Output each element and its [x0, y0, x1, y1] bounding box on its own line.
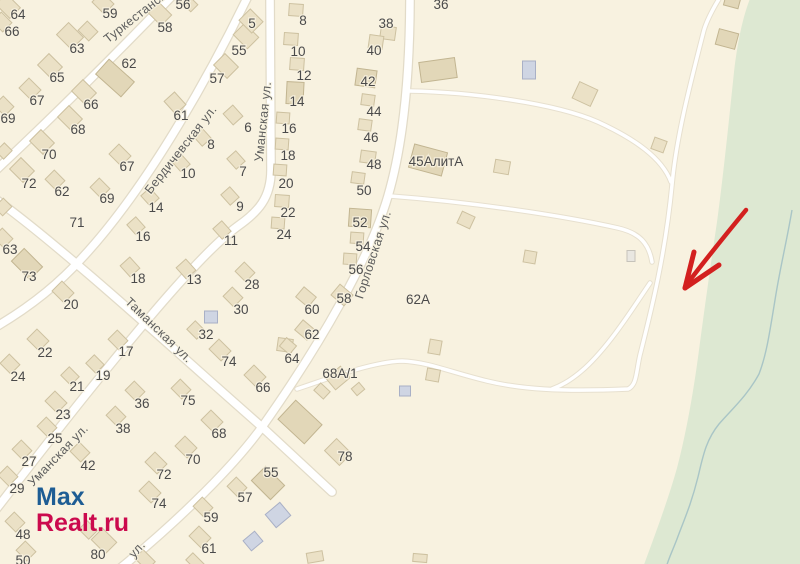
building — [265, 502, 290, 527]
building — [306, 551, 323, 564]
house-number-label: 73 — [21, 269, 36, 284]
house-number-label: 64 — [10, 7, 26, 22]
house-number-label: 16 — [135, 229, 150, 244]
house-number-label: 62 — [121, 56, 136, 71]
house-number-label: 72 — [156, 467, 171, 482]
house-number-label: 25 — [47, 431, 62, 446]
house-number-label: 74 — [151, 496, 167, 511]
house-number-label: 9 — [236, 199, 244, 214]
building — [572, 82, 598, 107]
road — [0, 0, 271, 512]
building — [426, 368, 441, 382]
house-number-label: 62 — [304, 327, 319, 342]
house-number-label: 62А — [406, 292, 430, 307]
building — [493, 159, 510, 174]
house-number-label: 13 — [186, 272, 201, 287]
map-canvas[interactable]: ТуркестанскаяБердичевская ул.Уманская ул… — [0, 0, 800, 564]
house-number-label: 8 — [207, 137, 215, 152]
house-number-label: 57 — [209, 71, 224, 86]
house-number-label: 54 — [355, 239, 371, 254]
watermark-logo: Max Realt.ru — [36, 484, 129, 536]
building — [523, 61, 536, 79]
building — [651, 137, 667, 153]
house-number-label: 48 — [366, 157, 381, 172]
house-number-label: 40 — [366, 43, 381, 58]
house-number-label: 6 — [244, 120, 252, 135]
house-number-label: 58 — [157, 20, 172, 35]
house-number-label: 63 — [2, 242, 17, 257]
house-number-label: 71 — [69, 215, 84, 230]
house-number-label: 10 — [180, 166, 195, 181]
house-number-label: 59 — [203, 510, 218, 525]
house-number-label: 16 — [281, 121, 296, 136]
building — [457, 211, 475, 229]
house-number-label: 46 — [363, 130, 378, 145]
house-number-label: 20 — [278, 176, 293, 191]
house-number-label: 5 — [248, 16, 256, 31]
building — [428, 339, 442, 355]
house-number-label: 65 — [49, 70, 64, 85]
house-number-label: 52 — [352, 215, 367, 230]
house-number-label: 56 — [175, 0, 190, 12]
house-number-label: 7 — [239, 164, 247, 179]
house-number-label: 50 — [15, 553, 30, 564]
house-number-label: 28 — [244, 277, 259, 292]
house-number-label: 64 — [284, 351, 300, 366]
building — [223, 105, 243, 125]
house-number-label: 32 — [198, 327, 213, 342]
house-number-label: 70 — [185, 452, 200, 467]
house-number-label: 67 — [119, 159, 134, 174]
house-number-label: 69 — [99, 191, 114, 206]
house-number-label: 69 — [0, 111, 15, 126]
building — [627, 251, 635, 262]
house-number-label: 44 — [366, 104, 382, 119]
house-number-label: 75 — [180, 393, 195, 408]
house-number-label: 24 — [276, 227, 292, 242]
building — [413, 553, 428, 562]
house-number-label: 42 — [80, 458, 95, 473]
house-number-label: 62 — [54, 184, 69, 199]
house-number-label: 68 — [211, 426, 226, 441]
house-number-label: 21 — [69, 379, 84, 394]
house-number-label: 68 — [70, 122, 85, 137]
house-number-label: 22 — [280, 205, 295, 220]
house-number-label: 20 — [63, 297, 78, 312]
house-number-label: 58 — [336, 291, 351, 306]
house-number-label: 12 — [296, 68, 311, 83]
building — [715, 29, 738, 50]
building — [273, 164, 287, 176]
road — [0, 0, 271, 512]
watermark-line1: Max — [36, 484, 129, 510]
house-number-label: 59 — [102, 6, 117, 21]
house-number-label: 68А/1 — [322, 366, 357, 381]
house-number-label: 66 — [4, 24, 19, 39]
house-number-label: 14 — [148, 200, 164, 215]
house-number-label: 48 — [15, 527, 30, 542]
house-number-label: 57 — [237, 490, 252, 505]
building — [205, 311, 218, 323]
house-number-label: 50 — [356, 183, 371, 198]
house-number-label: 45АлитА — [409, 154, 464, 169]
house-number-label: 70 — [41, 147, 56, 162]
building — [419, 58, 457, 83]
house-number-label: 66 — [83, 97, 98, 112]
house-number-label: 23 — [55, 407, 70, 422]
building — [243, 531, 263, 551]
house-number-label: 18 — [130, 271, 145, 286]
building — [723, 0, 740, 9]
house-number-label: 72 — [21, 176, 36, 191]
house-number-label: 80 — [90, 547, 105, 562]
house-number-label: 29 — [9, 481, 24, 496]
house-number-label: 55 — [231, 43, 246, 58]
greenery-area — [642, 0, 800, 564]
house-number-label: 63 — [69, 41, 84, 56]
house-number-label: 17 — [118, 344, 133, 359]
house-number-label: 55 — [263, 465, 278, 480]
house-number-label: 61 — [173, 108, 188, 123]
house-number-label: 14 — [289, 94, 305, 109]
house-number-label: 38 — [115, 421, 130, 436]
house-number-label: 36 — [134, 396, 149, 411]
house-number-label: 78 — [337, 449, 352, 464]
road — [390, 196, 652, 262]
house-number-label: 38 — [378, 16, 393, 31]
house-number-label: 42 — [360, 74, 375, 89]
house-number-label: 24 — [10, 369, 26, 384]
house-number-label: 10 — [290, 44, 305, 59]
house-number-label: 74 — [221, 354, 237, 369]
house-number-label: 36 — [433, 0, 448, 12]
house-numbers-layer: 6466595658563625557656766616968687067107… — [0, 0, 463, 564]
house-number-label: 11 — [224, 233, 238, 248]
house-number-label: 61 — [201, 541, 216, 556]
house-number-label: 66 — [255, 380, 270, 395]
house-number-label: 67 — [29, 93, 44, 108]
house-number-label: 8 — [299, 13, 307, 28]
house-number-label: 18 — [280, 148, 295, 163]
house-number-label: 30 — [233, 302, 248, 317]
building — [400, 386, 411, 396]
building — [523, 250, 537, 264]
building — [351, 382, 364, 395]
house-number-label: 60 — [304, 302, 319, 317]
house-number-label: 27 — [21, 454, 36, 469]
house-number-label: 22 — [37, 345, 52, 360]
watermark-line2: Realt.ru — [36, 510, 129, 536]
house-number-label: 56 — [348, 262, 363, 277]
building — [278, 400, 322, 444]
house-number-label: 19 — [95, 368, 110, 383]
